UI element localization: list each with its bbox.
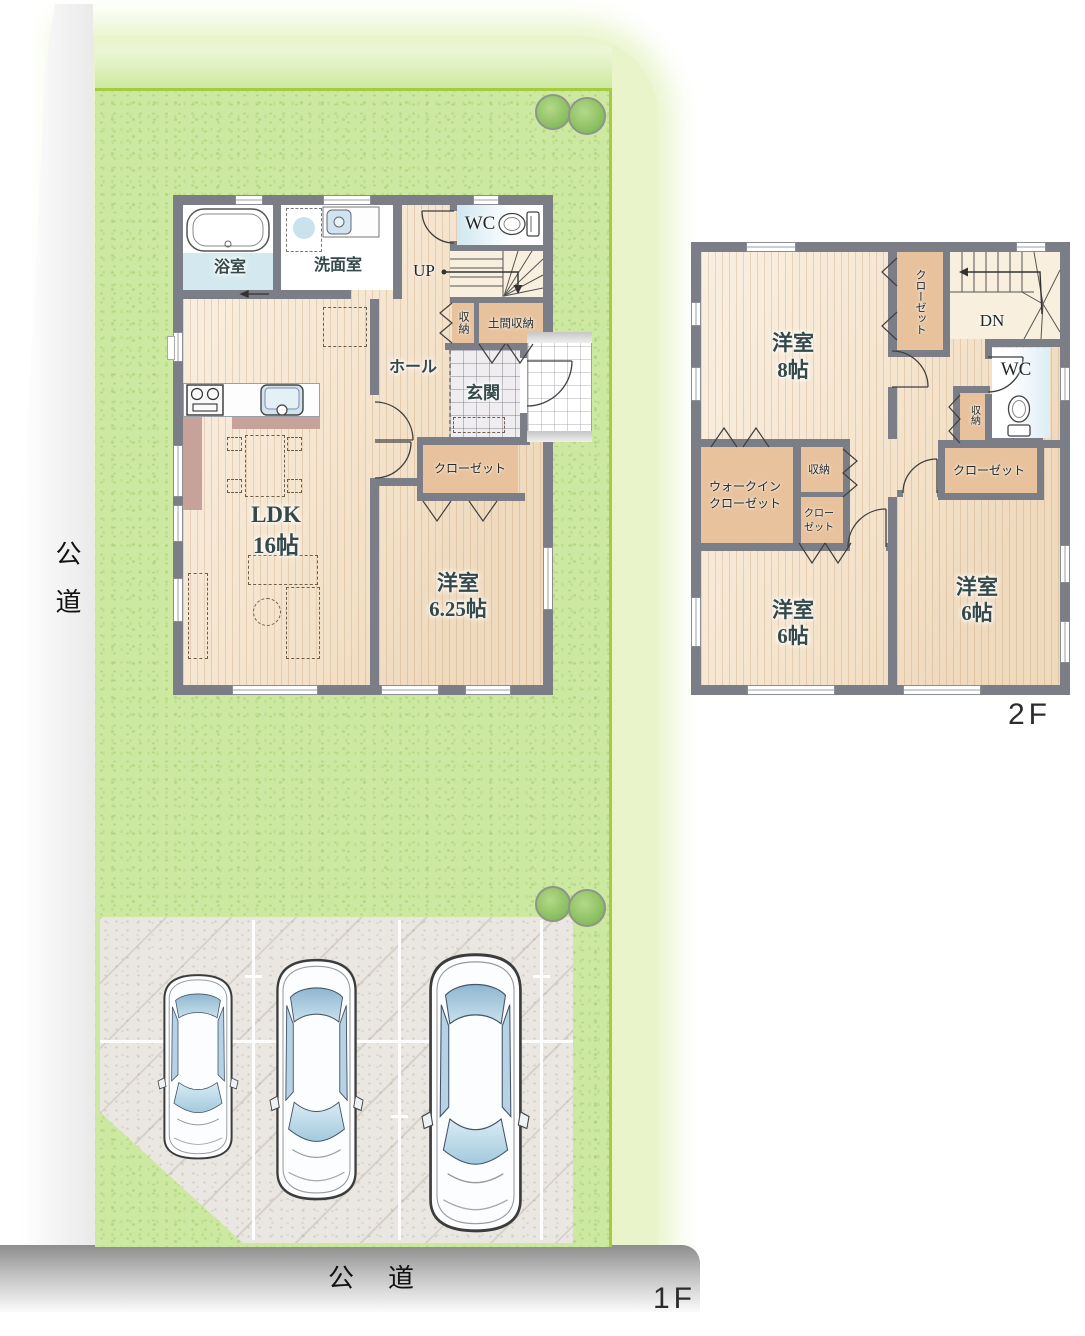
bath-door-arrow (241, 291, 269, 297)
closet-mid-label-2: ゼット (804, 519, 834, 534)
floor2-tag: 2F (1008, 698, 1051, 732)
wic-label-2: クローゼット (709, 495, 781, 512)
storage-wc-label: 収納 (967, 405, 982, 425)
ldk-size-label: 16帖 (253, 526, 299, 560)
sink-icon (261, 385, 303, 415)
storage-label: 収納 (455, 311, 471, 335)
hall-label: ホール (389, 353, 437, 377)
bedroom8-size-label: 8帖 (777, 354, 809, 384)
bedroom8-label: 洋室 (772, 327, 814, 357)
doma-storage-label: 土間収納 (488, 315, 534, 331)
toilet-icon-2f (1008, 396, 1030, 436)
car-sedan (270, 960, 363, 1199)
toilet-icon (499, 212, 539, 236)
ldk-label: LDK (251, 502, 301, 528)
bifold-doors (423, 303, 533, 521)
stairs-1f-icon (450, 251, 543, 297)
bedroom6-left-size-label: 6帖 (777, 620, 809, 650)
floor2-plan: 洋室 8帖 クローゼット DN WC 収納 クローゼット ウォークイン クローゼ… (691, 242, 1070, 695)
genkan-label: 玄関 (466, 379, 500, 404)
door-arcs (375, 211, 572, 478)
wc-label: WC (465, 213, 496, 235)
bedroom-size-label: 6.25帖 (429, 593, 487, 623)
bath-label: 浴室 (214, 253, 246, 277)
closet-top-label: クローゼット (912, 269, 928, 335)
floor1-plan: 浴室 洗面室 WC UP ホール 収納 土間収納 玄関 クローゼット LDK 1… (173, 195, 553, 695)
dn-arrow (959, 268, 1042, 315)
road-bottom-label: 公道 (328, 1258, 448, 1295)
road-left-label: 公道 (48, 540, 85, 636)
wic-label-1: ウォークイン (709, 478, 781, 495)
closet-mid-label-1: クロー (804, 505, 834, 520)
up-label: UP (413, 261, 435, 281)
tree-pair-top (536, 95, 605, 134)
floorplan-page: 浴室 洗面室 WC UP ホール 収納 土間収納 玄関 クローゼット LDK 1… (0, 0, 1085, 1336)
stairs-2f-icon (950, 252, 1060, 339)
dn-label: DN (980, 311, 1005, 331)
door-arcs-2f (848, 351, 1023, 547)
wc-label-2f: WC (1001, 359, 1032, 381)
bedroom6-right-size-label: 6帖 (961, 597, 993, 627)
tree-pair-parking (536, 887, 605, 926)
bathtub-icon (187, 209, 269, 251)
washroom-label: 洗面室 (314, 251, 362, 275)
car-small (158, 975, 238, 1158)
washbasin-icon (323, 207, 379, 237)
closet-right-label: クローゼット (953, 462, 1025, 479)
car-large (422, 955, 529, 1231)
storage-mid-label: 収納 (808, 461, 830, 477)
stove-icon (187, 385, 223, 415)
floor1-tag: 1F (653, 1282, 696, 1316)
closet-label: クローゼット (434, 460, 506, 477)
shower-icon (293, 217, 315, 239)
